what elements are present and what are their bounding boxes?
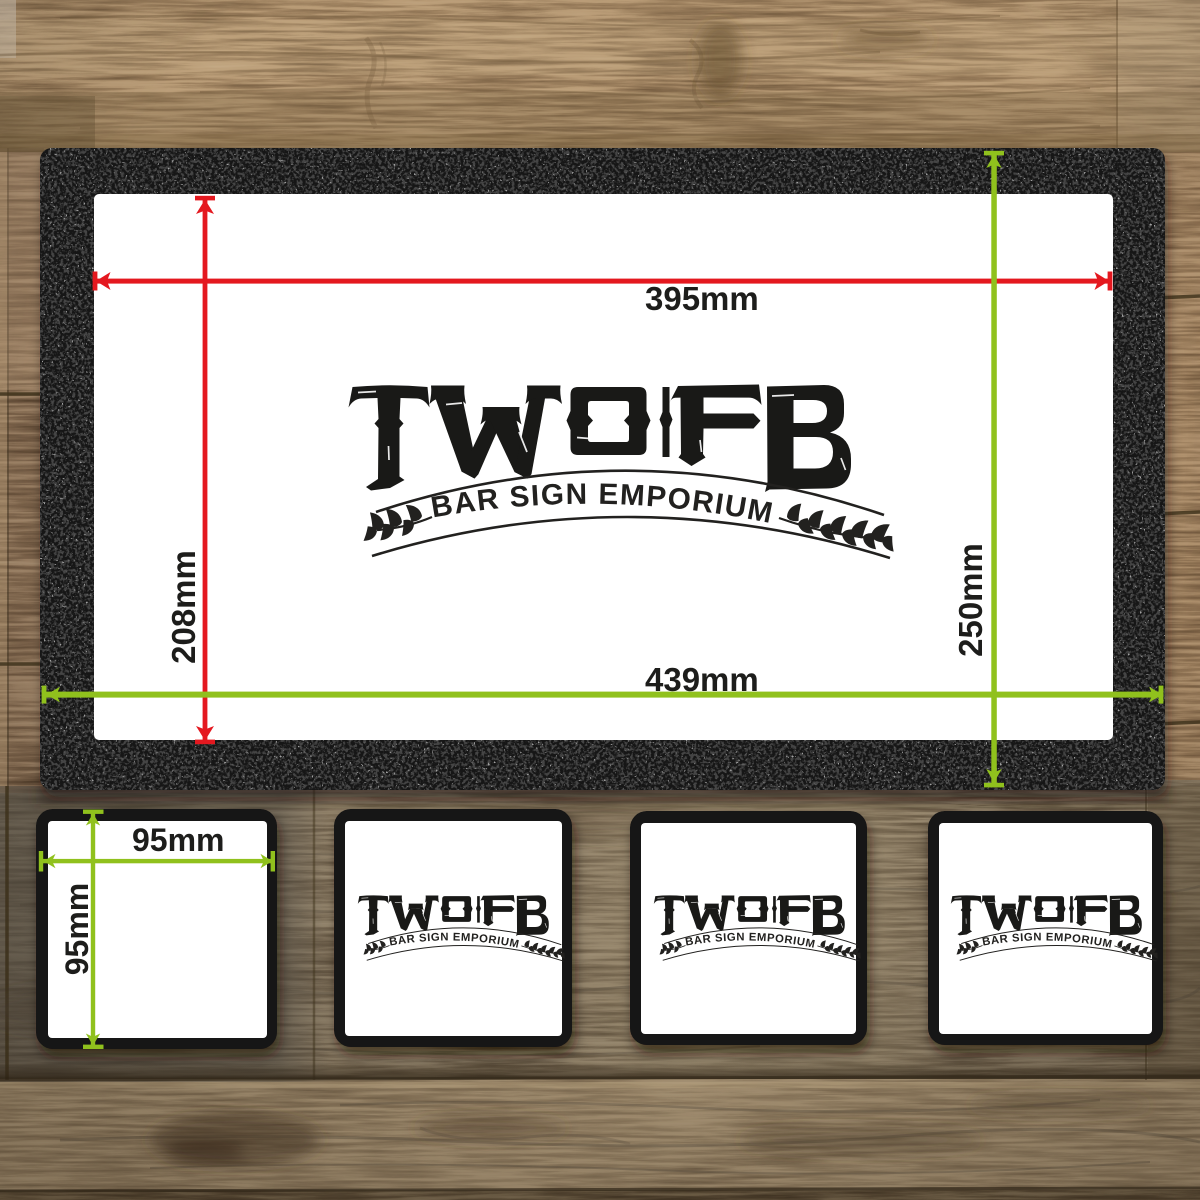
- svg-text:95mm: 95mm: [59, 883, 95, 976]
- svg-text:208mm: 208mm: [165, 550, 202, 664]
- svg-text:439mm: 439mm: [645, 661, 759, 698]
- svg-text:395mm: 395mm: [645, 280, 759, 317]
- svg-text:250mm: 250mm: [952, 543, 989, 657]
- svg-text:95mm: 95mm: [132, 822, 225, 858]
